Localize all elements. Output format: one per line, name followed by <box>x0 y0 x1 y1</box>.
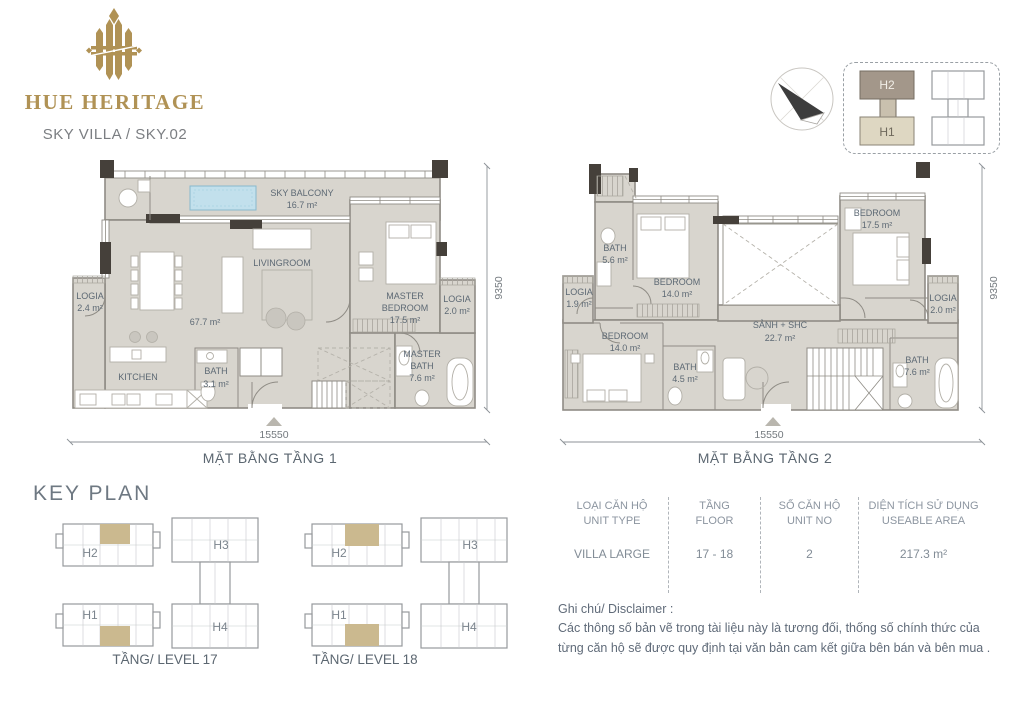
room-area-main: 67.7 m² <box>190 317 221 327</box>
keyplan-level17-caption: TẦNG/ LEVEL 17 <box>50 652 280 667</box>
room-label-master-bath-1: MASTER <box>403 349 441 359</box>
col-header-en: UNIT TYPE <box>560 514 664 529</box>
col-header-en: FLOOR <box>673 514 756 529</box>
useable-area-value: 217.3 m² <box>863 547 984 561</box>
room-label-master-bedroom-1: MASTER <box>386 291 424 301</box>
table-col-useable-area: DIỆN TÍCH SỬ DỤNG USEABLE AREA 217.3 m² <box>858 497 988 593</box>
unit-subtitle: SKY VILLA / SKY.02 <box>20 126 210 143</box>
keyplan-level-17: H2 H3 H1 H4 <box>38 516 268 656</box>
keyplan18-label-h4: H4 <box>461 620 477 634</box>
room-area-master-bedroom: 17.5 m² <box>390 315 421 325</box>
keyplan18-label-h2: H2 <box>331 546 347 560</box>
floor-value: 17 - 18 <box>673 547 756 561</box>
room-area-bedroom-right: 17.5 m² <box>862 220 893 230</box>
plan2-caption: MẶT BẰNG TẦNG 2 <box>565 450 965 466</box>
room-label-sky-balcony: SKY BALCONY <box>270 188 333 198</box>
keyplan17-buildings: H2 H3 H1 H4 <box>56 518 258 648</box>
room-label-bath-right: BATH <box>905 355 928 365</box>
room-label-hall: SẢNH + SHC <box>753 319 808 330</box>
keyplan-title: KEY PLAN <box>33 482 151 506</box>
room-label-master-bedroom-2: BEDROOM <box>382 303 429 313</box>
room-area-bath-mid: 4.5 m² <box>672 374 698 384</box>
dim-width-plan1: 15550 <box>259 429 288 441</box>
room-label-master-bath-2: BATH <box>410 361 433 371</box>
room-label-bath: BATH <box>204 366 227 376</box>
mini-key-plan: H2 H1 <box>843 62 1000 154</box>
floor-plan-level-1: SKY BALCONY 16.7 m² LIVINGROOM 67.7 m² L… <box>50 158 510 468</box>
mini-label-h2: H2 <box>879 78 895 92</box>
room-label-logia-left-2: LOGIA <box>565 287 593 297</box>
mini-key-plan-drawing: H2 H1 <box>844 63 998 152</box>
keyplan-level-18: H2 H3 H1 H4 <box>287 516 517 656</box>
plan2-void <box>723 216 838 305</box>
dim-width-plan2: 15550 <box>754 429 783 441</box>
mini-label-h1: H1 <box>879 125 895 139</box>
room-label-logia-left: LOGIA <box>76 291 104 301</box>
disclaimer: Ghi chú/ Disclaimer : Các thông số bản v… <box>558 600 1003 658</box>
disclaimer-title: Ghi chú/ Disclaimer : <box>558 600 1003 619</box>
dim-height-plan2: 9350 <box>988 276 1000 300</box>
room-label-logia-right-2: LOGIA <box>929 293 957 303</box>
col-header-vi: LOẠI CĂN HỘ <box>560 499 664 514</box>
brand-monogram-icon <box>82 8 146 88</box>
room-area-bedroom-bottom: 14.0 m² <box>610 343 641 353</box>
room-label-bedroom-top: BEDROOM <box>654 277 701 287</box>
room-label-bedroom-right: BEDROOM <box>854 208 901 218</box>
keyplan18-label-h1: H1 <box>331 608 347 622</box>
room-area-bath-right: 7.6 m² <box>904 367 930 377</box>
room-area-hall: 22.7 m² <box>765 333 796 343</box>
unit-info-table: LOẠI CĂN HỘ UNIT TYPE VILLA LARGE TẦNG F… <box>556 497 988 593</box>
room-area-sky-balcony: 16.7 m² <box>287 200 318 210</box>
room-label-logia-right: LOGIA <box>443 294 471 304</box>
col-header-vi: TẦNG <box>673 499 756 514</box>
unit-type-value: VILLA LARGE <box>560 547 664 561</box>
keyplan-level18-caption: TẦNG/ LEVEL 18 <box>250 652 480 667</box>
compass-icon <box>765 62 839 136</box>
brand-wordmark: HUE HERITAGE <box>20 90 210 115</box>
table-col-unit-type: LOẠI CĂN HỘ UNIT TYPE VILLA LARGE <box>556 497 668 593</box>
col-header-vi: SỐ CĂN HỘ <box>765 499 854 514</box>
room-label-bath-top: BATH <box>603 243 626 253</box>
room-area-bath-top: 5.6 m² <box>602 255 628 265</box>
col-header-en: USEABLE AREA <box>863 514 984 529</box>
disclaimer-line1: Các thông số bản vẽ trong tài liệu này l… <box>558 619 1003 638</box>
plan1-caption: MẶT BẰNG TẦNG 1 <box>70 450 470 466</box>
table-col-floor: TẦNG FLOOR 17 - 18 <box>668 497 760 593</box>
room-label-bedroom-bottom: BEDROOM <box>602 331 649 341</box>
col-header-en: UNIT NO <box>765 514 854 529</box>
col-header-vi: DIỆN TÍCH SỬ DỤNG <box>863 499 984 514</box>
room-area-master-bath: 7.6 m² <box>409 373 435 383</box>
room-label-bath-mid: BATH <box>673 362 696 372</box>
table-col-unit-no: SỐ CĂN HỘ UNIT NO 2 <box>760 497 858 593</box>
room-area-logia-right-2: 2.0 m² <box>930 305 956 315</box>
room-area-bedroom-top: 14.0 m² <box>662 289 693 299</box>
room-area-bath: 3.1 m² <box>203 379 229 389</box>
dim-height-plan1: 9350 <box>493 276 505 300</box>
room-area-logia-right: 2.0 m² <box>444 306 470 316</box>
keyplan17-label-h4: H4 <box>212 620 228 634</box>
keyplan17-label-h3: H3 <box>213 538 229 552</box>
room-label-kitchen: KITCHEN <box>118 372 158 382</box>
room-area-logia-left: 2.4 m² <box>77 303 103 313</box>
mini-building-h2h1: H2 H1 <box>860 71 914 145</box>
unit-no-value: 2 <box>765 547 854 561</box>
keyplan17-label-h2: H2 <box>82 546 98 560</box>
keyplan18-label-h3: H3 <box>462 538 478 552</box>
keyplan17-label-h1: H1 <box>82 608 98 622</box>
room-area-logia-left-2: 1.9 m² <box>566 299 592 309</box>
floor-plan-level-2: BATH 5.6 m² BEDROOM 14.0 m² BEDROOM 17.5… <box>545 158 1005 468</box>
keyplan18-buildings: H2 H3 H1 H4 <box>305 518 507 648</box>
disclaimer-line2: từng căn hộ sẽ được quy định tại văn bản… <box>558 639 1003 658</box>
brochure-page: HUE HERITAGE SKY VILLA / SKY.02 H2 H1 <box>0 0 1024 724</box>
mini-building-outline <box>932 71 984 145</box>
room-label-livingroom: LIVINGROOM <box>253 258 311 268</box>
